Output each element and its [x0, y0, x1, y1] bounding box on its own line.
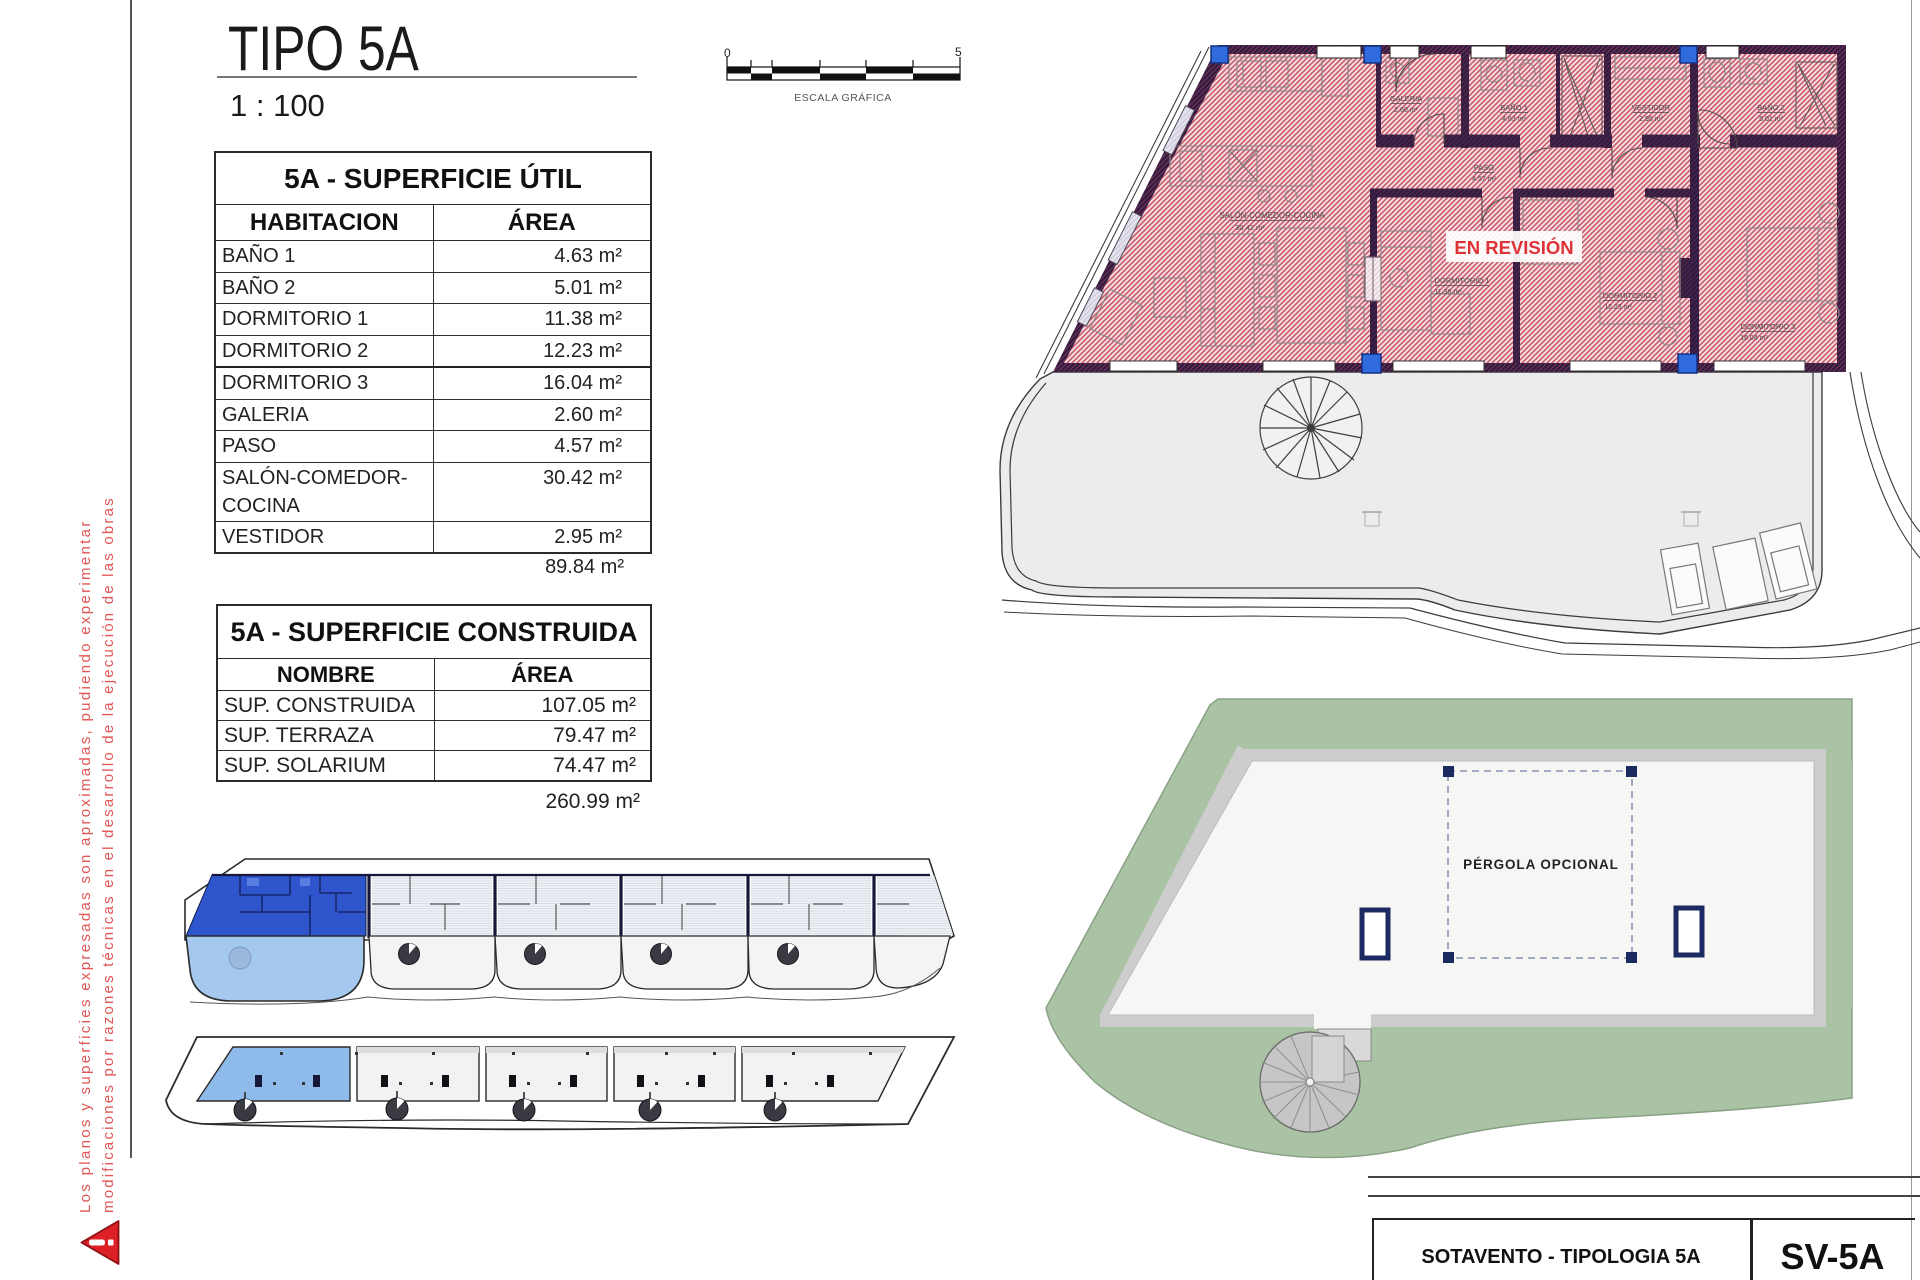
svg-text:EN REVISIÓN: EN REVISIÓN	[1454, 237, 1573, 258]
svg-text:2.60 m²: 2.60 m²	[1394, 107, 1418, 114]
svg-text:12.23 m²: 12.23 m²	[1604, 304, 1632, 311]
svg-text:ESCALA GRÁFICA: ESCALA GRÁFICA	[794, 91, 891, 104]
svg-text:BAÑO 1: BAÑO 1	[1500, 103, 1528, 112]
svg-text:DORMITORIO 1: DORMITORIO 1	[1435, 276, 1490, 285]
svg-text:GALERIA: GALERIA	[1390, 94, 1423, 103]
svg-text:4.63 m²: 4.63 m²	[1502, 116, 1526, 123]
svg-text:DORMITORIO 3: DORMITORIO 3	[1741, 322, 1796, 331]
svg-text:PASO: PASO	[1474, 163, 1494, 172]
svg-text:30.42 m²: 30.42 m²	[1235, 223, 1265, 232]
svg-text:4.57 m²: 4.57 m²	[1472, 176, 1496, 183]
svg-text:5.01 m²: 5.01 m²	[1759, 116, 1783, 123]
svg-text:2.95 m²: 2.95 m²	[1639, 116, 1663, 123]
svg-text:DORMITORIO 2: DORMITORIO 2	[1603, 291, 1658, 300]
svg-text:VESTIDOR: VESTIDOR	[1632, 103, 1671, 112]
svg-text:PÉRGOLA OPCIONAL: PÉRGOLA OPCIONAL	[1463, 857, 1619, 872]
svg-text:16.04 m²: 16.04 m²	[1740, 335, 1768, 342]
svg-text:SALÓN-COMEDOR-COCINA: SALÓN-COMEDOR-COCINA	[1219, 211, 1325, 220]
svg-text:BAÑO 2: BAÑO 2	[1757, 103, 1785, 112]
svg-text:5: 5	[955, 45, 962, 59]
svg-text:11.38 m²: 11.38 m²	[1434, 289, 1462, 296]
